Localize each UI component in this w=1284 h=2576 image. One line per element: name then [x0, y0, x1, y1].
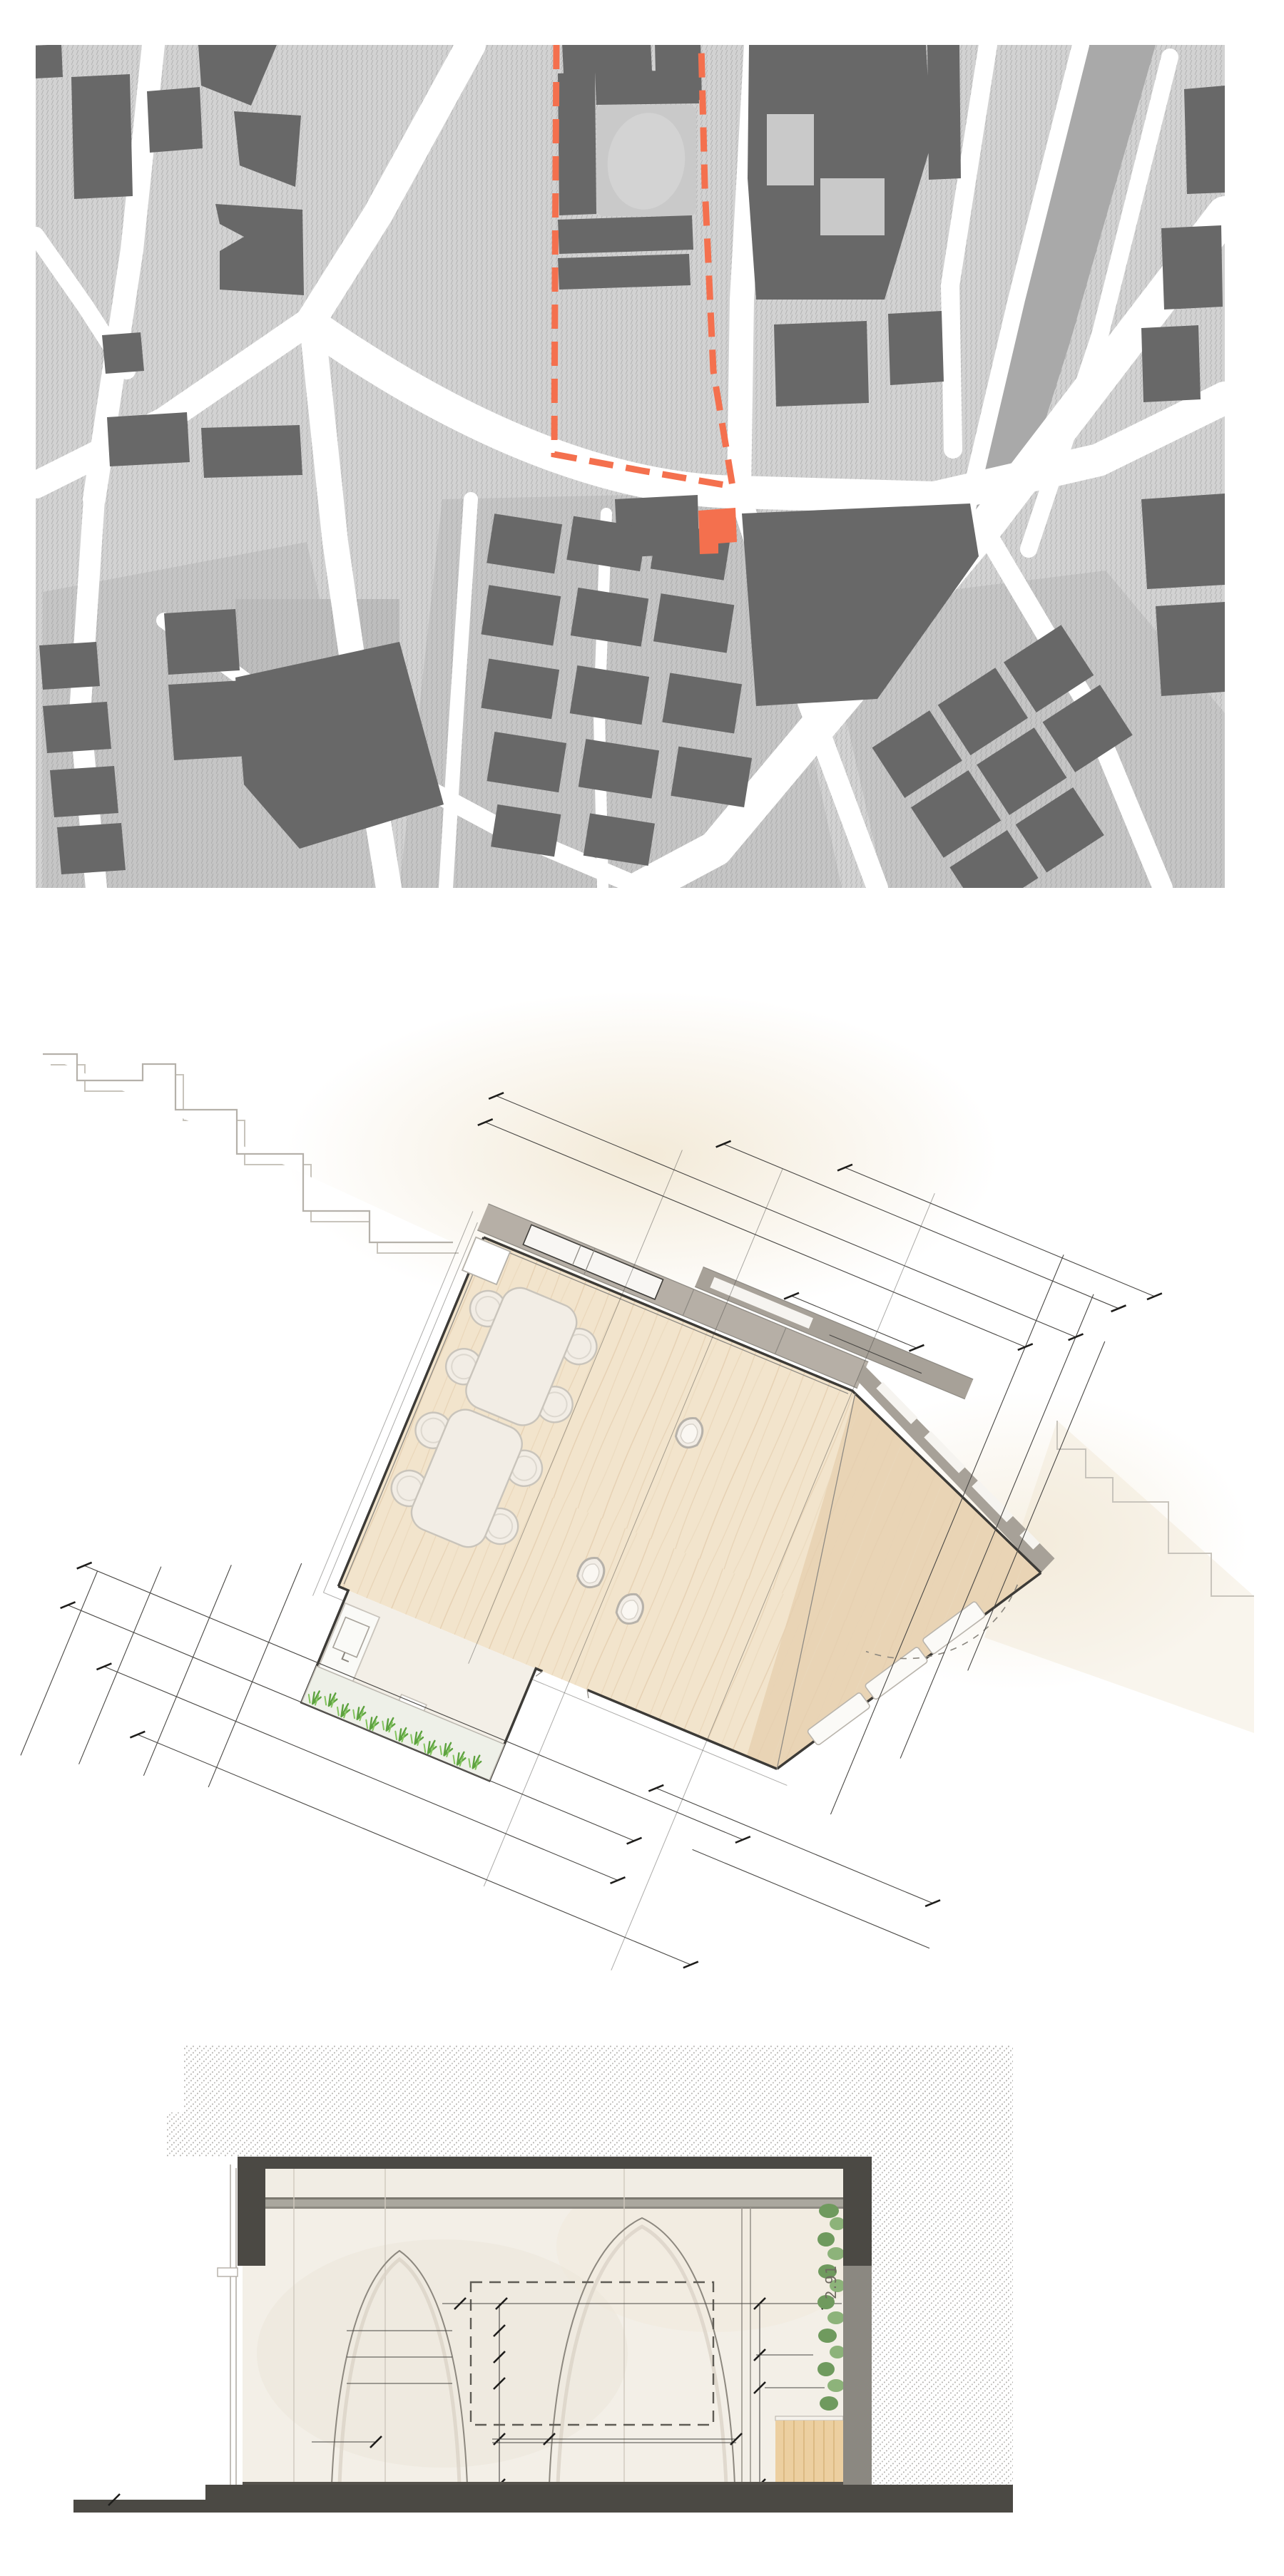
drawing-sheet: { "document": { "type": "architectural p… [0, 0, 1284, 2576]
hatch-step-notch [166, 2045, 183, 2112]
section-hatch-right [872, 2045, 1013, 2485]
ceiling-track [243, 2197, 843, 2209]
sheet-canvas: 2.91 [0, 0, 1284, 2576]
ground-slab [205, 2485, 1013, 2513]
left-wall-ledge [218, 2268, 238, 2276]
left-wall-pier [238, 2157, 265, 2266]
floor-plan [2, 944, 1254, 2106]
floor-line [243, 2482, 843, 2485]
ground-apron [73, 2500, 205, 2513]
site-plan-map [34, 41, 1225, 915]
left-wall-face [230, 2164, 236, 2500]
right-wall-lower [843, 2266, 872, 2485]
section-drawing: 2.91 [73, 2045, 1013, 2513]
wood-cabinet [775, 2416, 843, 2485]
roof-slab [238, 2157, 872, 2169]
right-wall-upper [843, 2157, 872, 2266]
dim-label: 2.91 [822, 2264, 840, 2299]
